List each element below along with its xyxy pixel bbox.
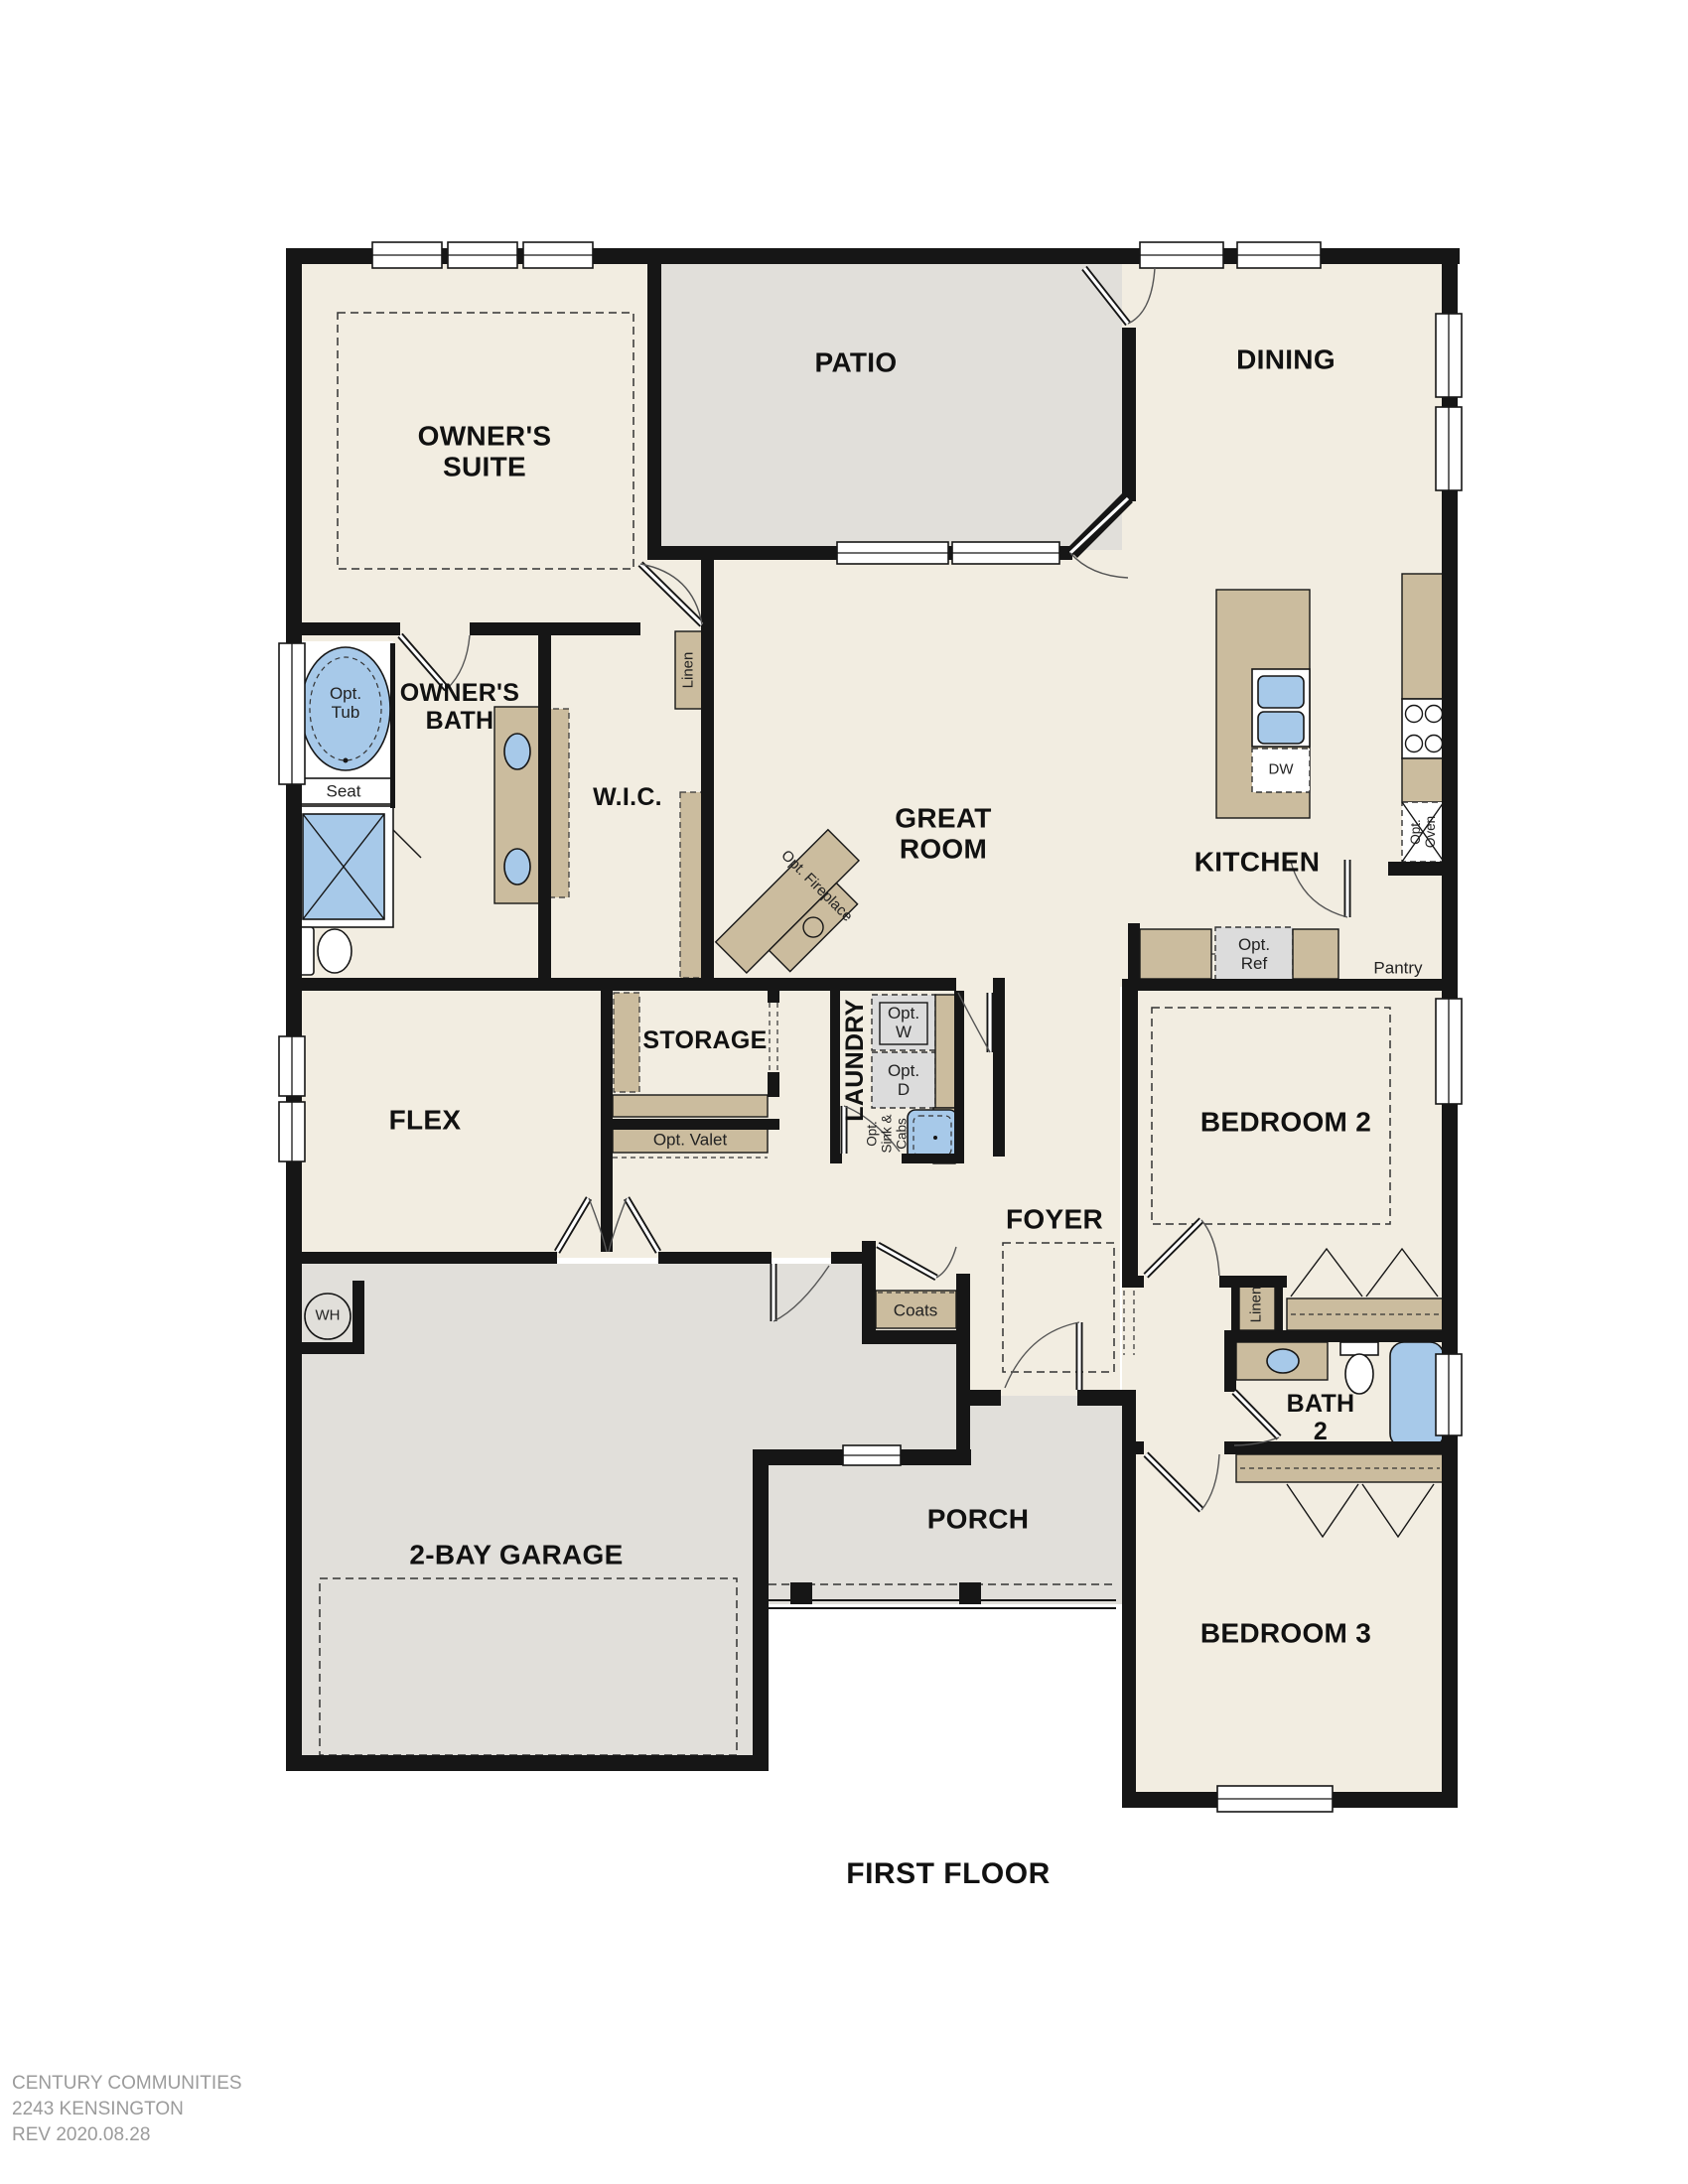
footer-revision: REV 2020.08.28: [12, 2122, 242, 2148]
foyer-label: FOYER: [1006, 1203, 1103, 1234]
toilet-icon: [1340, 1342, 1378, 1355]
sink-icon: [504, 849, 530, 885]
storage-shelf-icon: [614, 993, 639, 1092]
opt-sink-cabs-label: Opt. Sink & Cabs: [864, 1114, 909, 1153]
floor-plan-page: OWNER'S SUITE PATIO DINING OWNER'S BATH …: [0, 0, 1688, 2184]
wic-label: W.I.C.: [593, 783, 662, 811]
counter-icon: [1402, 574, 1444, 699]
patio-floor: [654, 256, 1122, 550]
storage-label: STORAGE: [642, 1026, 767, 1054]
dining-label: DINING: [1236, 343, 1336, 374]
kitchen-label: KITCHEN: [1195, 846, 1321, 877]
porch-column-icon: [790, 1582, 812, 1604]
porch-column-icon: [959, 1582, 981, 1604]
bath2-label: BATH 2: [1287, 1390, 1355, 1445]
footer-company: CENTURY COMMUNITIES: [12, 2071, 242, 2097]
great-room-label: GREAT ROOM: [895, 803, 991, 866]
porch-label: PORCH: [927, 1503, 1030, 1534]
owners-suite-label: OWNER'S SUITE: [418, 421, 552, 483]
opt-dryer-label: Opt. D: [888, 1061, 919, 1099]
footer-plan-number: 2243 KENSINGTON: [12, 2097, 242, 2122]
pantry-label: Pantry: [1373, 958, 1422, 977]
sink-icon: [1267, 1349, 1299, 1373]
page-title: FIRST FLOOR: [846, 1857, 1050, 1891]
opt-ref-label: Opt. Ref: [1238, 935, 1270, 973]
opt-washer-label: Opt. W: [888, 1004, 919, 1041]
sink-icon: [504, 734, 530, 769]
storage-bench-icon: [613, 1095, 768, 1117]
bedroom3-label: BEDROOM 3: [1200, 1617, 1371, 1648]
seat-label: Seat: [327, 781, 361, 800]
bedroom2-label: BEDROOM 2: [1200, 1106, 1371, 1137]
footer: CENTURY COMMUNITIES 2243 KENSINGTON REV …: [12, 2071, 242, 2148]
opt-tub-label: Opt. Tub: [330, 684, 361, 722]
opt-valet-label: Opt. Valet: [653, 1130, 727, 1149]
dishwasher-label: DW: [1269, 762, 1294, 779]
patio-label: PATIO: [815, 346, 898, 377]
opt-oven-label: Opt. Oven: [1408, 816, 1438, 848]
flex-label: FLEX: [389, 1104, 462, 1135]
garage-label: 2-BAY GARAGE: [409, 1539, 623, 1570]
owners-bath-label: OWNER'S BATH: [400, 679, 520, 735]
coats-label: Coats: [894, 1300, 937, 1319]
laundry-label: LAUNDRY: [841, 999, 869, 1121]
water-heater-label: WH: [316, 1308, 341, 1325]
linen-wic-label: Linen: [681, 652, 698, 689]
linen-hall-label: Linen: [1249, 1287, 1266, 1323]
